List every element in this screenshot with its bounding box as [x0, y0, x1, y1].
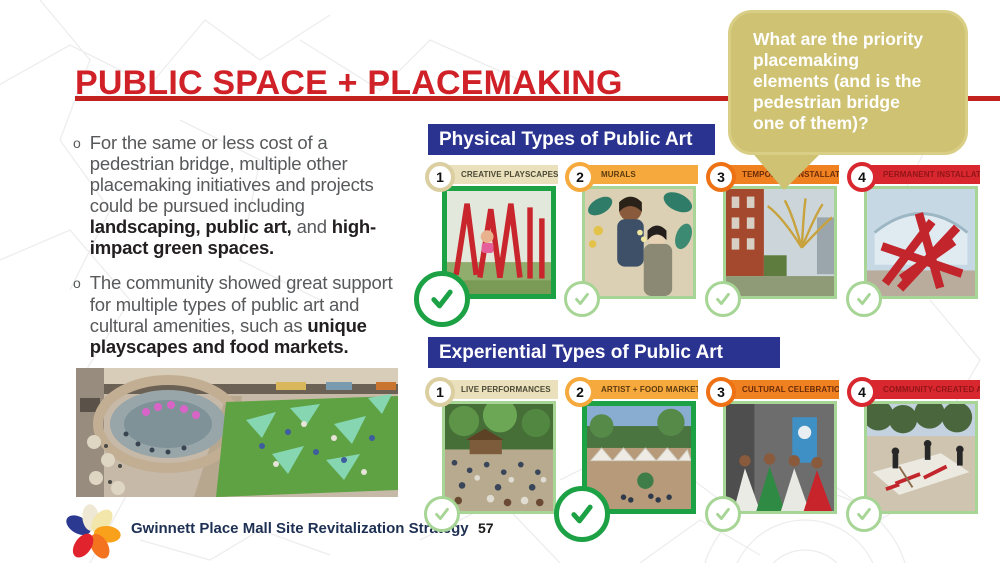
callout-question-bubble: What are the priority placemaking elemen… — [728, 10, 968, 155]
card-creative-playscapes: CREATIVE PLAYSCAPES 1 — [426, 162, 558, 322]
footer-strategy-title: Gwinnett Place Mall Site Revitalization … — [131, 520, 469, 537]
bullet-text: The community showed great support for m… — [90, 272, 407, 356]
card-murals: MURALS 2 — [566, 162, 698, 322]
checkmark-icon — [424, 496, 460, 532]
card-label: COMMUNITY-CREATED ART — [861, 380, 980, 399]
card-number-badge: 1 — [425, 162, 455, 192]
card-temporary-installations: TEMPORARY INSTALLATIONS 3 — [707, 162, 839, 322]
section-header-experiential: Experiential Types of Public Art — [428, 337, 780, 368]
bullet-text: For the same or less cost of a pedestria… — [90, 132, 407, 258]
card-number-badge: 2 — [565, 377, 595, 407]
bullet-list: o For the same or less cost of a pedestr… — [73, 132, 407, 371]
card-number-badge: 3 — [706, 162, 736, 192]
checkmark-icon — [564, 281, 600, 317]
bullet-text-segment-bold: landscaping, public art, — [90, 216, 292, 237]
card-label: CREATIVE PLAYSCAPES — [439, 165, 558, 184]
card-number-badge: 1 — [425, 377, 455, 407]
checkmark-icon — [846, 496, 882, 532]
card-photo-community-created-art — [864, 401, 978, 514]
card-number-badge: 4 — [847, 377, 877, 407]
checkmark-icon — [414, 271, 470, 327]
card-live-performances: LIVE PERFORMANCES 1 — [426, 377, 558, 537]
checkmark-icon — [554, 486, 610, 542]
checkmark-icon — [705, 281, 741, 317]
card-label: ARTIST + FOOD MARKET — [579, 380, 698, 399]
card-label: LIVE PERFORMANCES — [439, 380, 558, 399]
bullet-marker: o — [73, 272, 81, 356]
bullet-item: o The community showed great support for… — [73, 272, 407, 356]
card-label: CULTURAL CELEBRATIONS — [720, 380, 839, 399]
page-title: PUBLIC SPACE + PLACEMAKING — [75, 64, 623, 103]
bullet-marker: o — [73, 132, 81, 258]
card-cultural-celebrations: CULTURAL CELEBRATIONS 3 — [707, 377, 839, 537]
bullet-text-segment: For the same or less cost of a pedestria… — [90, 132, 374, 216]
card-label: MURALS — [579, 165, 698, 184]
checkmark-icon — [846, 281, 882, 317]
slide: PUBLIC SPACE + PLACEMAKING o For the sam… — [0, 0, 1000, 563]
card-photo-permanent-installations — [864, 186, 978, 299]
checkmark-icon — [705, 496, 741, 532]
aerial-plaza-photo — [76, 368, 398, 497]
card-permanent-installations: PERMANENT INSTALLATIONS 4 — [848, 162, 980, 322]
card-number-badge: 3 — [706, 377, 736, 407]
section-header-physical: Physical Types of Public Art — [428, 124, 715, 155]
card-number-badge: 2 — [565, 162, 595, 192]
card-community-created-art: COMMUNITY-CREATED ART 4 — [848, 377, 980, 537]
card-photo-murals — [582, 186, 696, 299]
card-artist-food-market: ARTIST + FOOD MARKET 2 — [566, 377, 698, 537]
card-number-badge: 4 — [847, 162, 877, 192]
gwinnett-pinwheel-logo — [58, 500, 130, 560]
card-photo-live-performances — [442, 401, 556, 514]
page-number: 57 — [478, 520, 494, 536]
bullet-item: o For the same or less cost of a pedestr… — [73, 132, 407, 258]
bullet-text-segment: and — [292, 216, 332, 237]
card-photo-cultural-celebrations — [723, 401, 837, 514]
card-photo-temporary-installations — [723, 186, 837, 299]
card-label: PERMANENT INSTALLATIONS — [861, 165, 980, 184]
